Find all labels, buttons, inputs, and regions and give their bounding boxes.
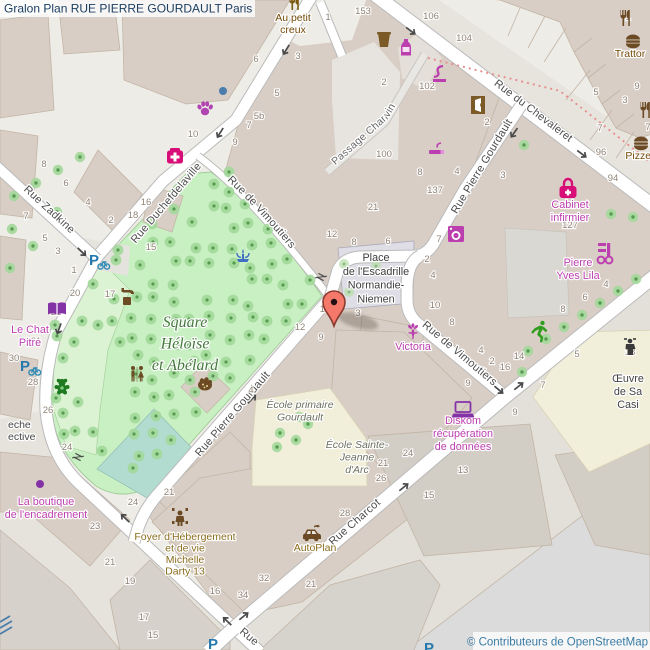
- svg-text:28: 28: [340, 508, 351, 519]
- svg-text:3: 3: [622, 95, 627, 106]
- svg-text:94: 94: [608, 173, 619, 184]
- svg-text:9: 9: [465, 378, 470, 389]
- svg-text:20: 20: [70, 288, 81, 299]
- svg-text:17: 17: [139, 612, 150, 623]
- svg-text:13: 13: [458, 465, 469, 476]
- svg-text:© Contributeurs de OpenStreetM: © Contributeurs de OpenStreetMap: [467, 637, 648, 649]
- svg-text:Gralon Plan RUE PIERRE GOURDAU: Gralon Plan RUE PIERRE GOURDAULT Paris: [4, 2, 252, 16]
- svg-text:Pizzer: Pizzer: [625, 150, 650, 162]
- svg-text:5b: 5b: [254, 111, 265, 122]
- svg-text:26: 26: [43, 405, 54, 416]
- svg-text:100: 100: [376, 149, 392, 160]
- svg-text:4: 4: [85, 197, 90, 208]
- svg-text:26: 26: [376, 473, 387, 484]
- svg-text:32: 32: [259, 573, 270, 584]
- svg-text:9: 9: [634, 81, 639, 92]
- svg-text:21: 21: [306, 579, 317, 590]
- svg-text:6: 6: [385, 236, 390, 247]
- svg-text:137: 137: [427, 185, 443, 196]
- svg-text:16: 16: [210, 586, 221, 597]
- svg-text:106: 106: [423, 11, 439, 22]
- svg-text:24: 24: [62, 442, 73, 453]
- svg-text:10: 10: [188, 129, 199, 140]
- svg-text:P: P: [208, 636, 218, 650]
- svg-text:24: 24: [128, 497, 139, 508]
- svg-text:153: 153: [355, 6, 371, 17]
- svg-text:3: 3: [500, 170, 505, 181]
- svg-text:3: 3: [295, 51, 300, 62]
- svg-text:8: 8: [351, 237, 356, 248]
- svg-text:9: 9: [232, 137, 237, 148]
- svg-text:17: 17: [105, 289, 116, 300]
- svg-text:9: 9: [512, 407, 517, 418]
- svg-text:18: 18: [128, 210, 139, 221]
- svg-text:2: 2: [108, 215, 113, 226]
- svg-text:8: 8: [449, 317, 454, 328]
- svg-text:1: 1: [325, 12, 330, 23]
- svg-text:Victoria: Victoria: [395, 341, 431, 353]
- svg-text:24: 24: [403, 448, 414, 459]
- svg-text:8: 8: [41, 159, 46, 170]
- svg-text:14: 14: [514, 351, 525, 362]
- svg-text:6: 6: [253, 54, 258, 65]
- svg-text:9: 9: [318, 332, 323, 343]
- svg-text:5: 5: [274, 88, 279, 99]
- svg-text:2: 2: [489, 356, 494, 367]
- svg-text:4: 4: [603, 279, 608, 290]
- svg-text:6: 6: [63, 178, 68, 189]
- svg-text:Trattor: Trattor: [615, 48, 646, 60]
- svg-text:4: 4: [248, 385, 253, 396]
- svg-text:8: 8: [560, 304, 565, 315]
- svg-text:21: 21: [378, 458, 389, 469]
- svg-text:5: 5: [574, 349, 579, 360]
- svg-text:15: 15: [146, 242, 157, 253]
- svg-text:104: 104: [456, 33, 472, 44]
- svg-text:28: 28: [28, 377, 39, 388]
- svg-text:2: 2: [381, 77, 386, 88]
- svg-text:Au petitcreux: Au petitcreux: [275, 12, 311, 36]
- svg-text:1: 1: [71, 265, 76, 276]
- svg-text:12: 12: [295, 322, 306, 333]
- svg-text:2: 2: [424, 254, 429, 265]
- svg-text:34: 34: [238, 590, 249, 601]
- svg-text:5: 5: [593, 87, 598, 98]
- svg-text:23: 23: [90, 521, 101, 532]
- svg-text:3: 3: [55, 246, 60, 257]
- svg-text:96: 96: [596, 147, 607, 158]
- svg-text:21: 21: [368, 202, 379, 213]
- svg-text:8: 8: [417, 167, 422, 178]
- svg-text:4: 4: [454, 166, 459, 177]
- svg-text:7: 7: [23, 211, 28, 222]
- svg-text:15: 15: [148, 630, 159, 641]
- svg-text:2: 2: [484, 117, 489, 128]
- svg-text:7: 7: [246, 120, 251, 131]
- svg-text:4: 4: [478, 345, 483, 356]
- svg-text:16: 16: [141, 197, 152, 208]
- svg-text:16: 16: [500, 362, 511, 373]
- svg-text:7: 7: [645, 122, 650, 133]
- svg-text:30: 30: [9, 353, 20, 364]
- svg-text:5: 5: [42, 233, 47, 244]
- svg-text:19: 19: [125, 576, 136, 587]
- svg-text:7: 7: [597, 123, 602, 134]
- svg-text:102: 102: [419, 81, 435, 92]
- svg-text:12: 12: [327, 229, 338, 240]
- svg-text:7: 7: [436, 234, 441, 245]
- svg-text:Cabinetinfirmier: Cabinetinfirmier: [551, 199, 590, 224]
- svg-text:4: 4: [430, 270, 435, 281]
- svg-text:21: 21: [164, 487, 175, 498]
- svg-text:6: 6: [582, 292, 587, 303]
- svg-text:10: 10: [430, 300, 441, 311]
- svg-text:21: 21: [105, 557, 116, 568]
- svg-text:15: 15: [424, 490, 435, 501]
- svg-text:P: P: [424, 640, 434, 650]
- svg-text:7: 7: [540, 380, 545, 391]
- svg-text:AutoPlan: AutoPlan: [294, 542, 337, 554]
